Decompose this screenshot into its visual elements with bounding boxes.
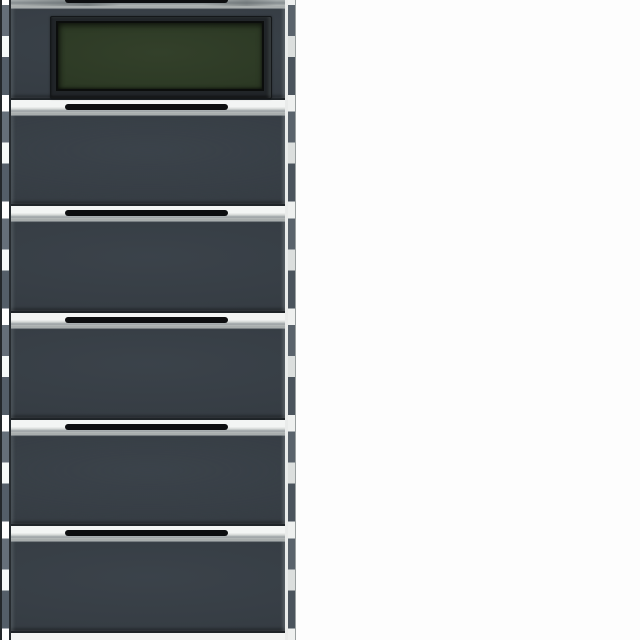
- pushbutton-device: [0, 0, 296, 640]
- separator-slot: [65, 104, 228, 110]
- rocker-button-3[interactable]: [11, 326, 285, 420]
- display-module[interactable]: [11, 6, 285, 100]
- rocker-button-5-row: [11, 533, 285, 640]
- rocker-button-1-row: [11, 107, 285, 214]
- separator-slot: [65, 530, 228, 536]
- rocker-button-2-row: [11, 213, 285, 320]
- rocker-button-4[interactable]: [11, 433, 285, 527]
- separator-slot: [65, 210, 228, 216]
- right-mounting-rail: [288, 0, 296, 640]
- product-photo: [0, 0, 640, 640]
- display-screen: [56, 21, 264, 91]
- display-bezel: [50, 16, 272, 99]
- rocker-button-1[interactable]: [11, 113, 285, 207]
- separator-slot: [65, 317, 228, 323]
- button-column: [11, 0, 285, 640]
- separator-slot: [65, 0, 228, 3]
- rocker-button-5[interactable]: [11, 539, 285, 633]
- rocker-button-3-row: [11, 320, 285, 427]
- separator-slot: [65, 424, 228, 430]
- rocker-button-2[interactable]: [11, 219, 285, 313]
- left-mounting-rail: [2, 0, 9, 640]
- display-module-row: [11, 0, 285, 107]
- rocker-button-4-row: [11, 427, 285, 534]
